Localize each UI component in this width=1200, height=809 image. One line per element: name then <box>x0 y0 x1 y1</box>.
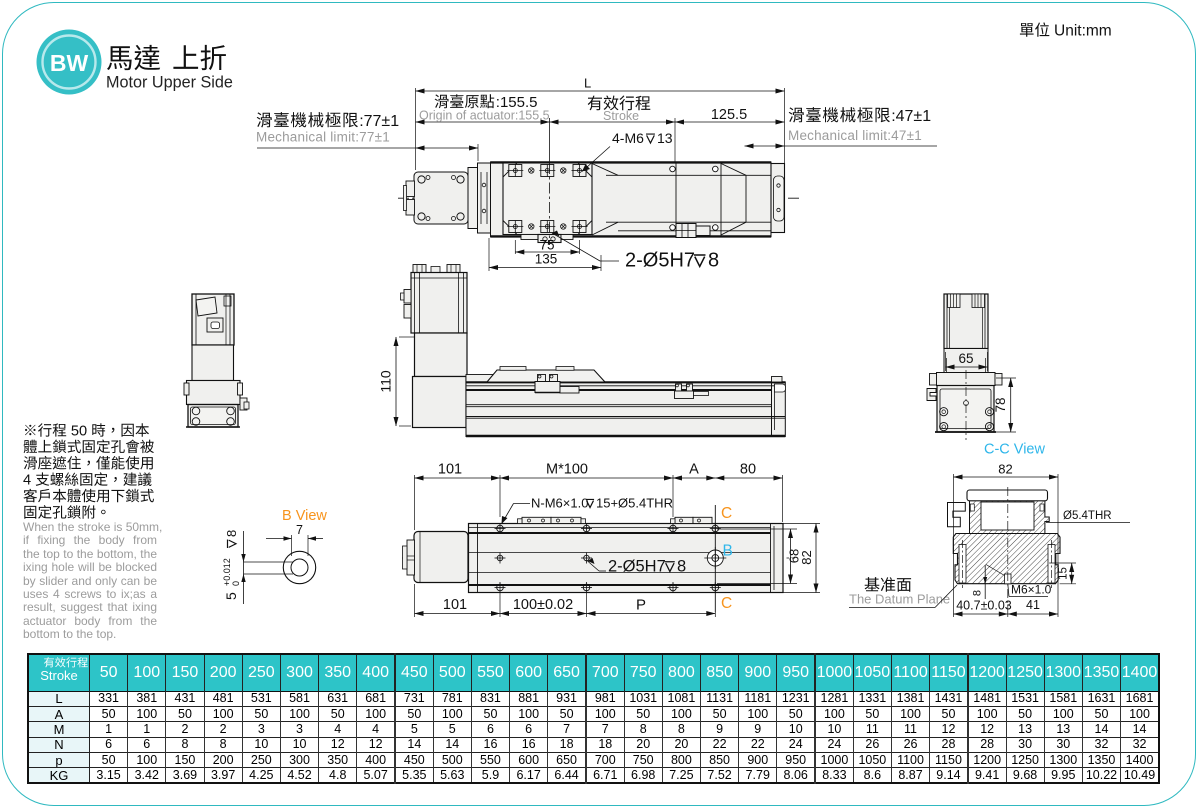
svg-text:Origin of actuator:155.5: Origin of actuator:155.5 <box>419 109 550 123</box>
svg-text:M6×1.0: M6×1.0 <box>1011 583 1052 597</box>
svg-text:Motor Upper Side: Motor Upper Side <box>106 74 233 92</box>
svg-text:B View: B View <box>282 508 327 524</box>
svg-text:C-C View: C-C View <box>984 442 1045 458</box>
svg-text:40.7±0.03: 40.7±0.03 <box>956 599 1012 613</box>
svg-text:65: 65 <box>958 351 973 366</box>
svg-text:135: 135 <box>535 252 558 267</box>
svg-text:82: 82 <box>998 462 1012 477</box>
svg-text:0: 0 <box>231 581 241 586</box>
svg-text::77±1: :77±1 <box>359 113 399 130</box>
svg-text::47±1: :47±1 <box>891 108 931 125</box>
svg-text:82: 82 <box>799 550 814 564</box>
svg-text:Ø5.4THR: Ø5.4THR <box>1063 510 1112 522</box>
svg-text:M*100: M*100 <box>546 462 588 478</box>
svg-text:Unit:mm: Unit:mm <box>1054 23 1112 40</box>
svg-text:C: C <box>721 505 732 522</box>
svg-text:A: A <box>689 462 699 478</box>
svg-text:C: C <box>721 595 732 612</box>
svg-text:Mechanical limit:47±1: Mechanical limit:47±1 <box>788 128 922 143</box>
svg-text:101: 101 <box>443 597 467 613</box>
svg-text:13: 13 <box>657 130 673 146</box>
svg-text:P: P <box>636 597 646 614</box>
svg-text:2-Ø5H7: 2-Ø5H7 <box>625 250 695 272</box>
svg-text:4: 4 <box>23 473 35 489</box>
svg-text:BW: BW <box>50 50 89 76</box>
svg-text:2-Ø5H7: 2-Ø5H7 <box>608 558 666 576</box>
svg-text:50: 50 <box>67 424 91 440</box>
svg-text:41: 41 <box>1026 598 1040 612</box>
svg-text:7: 7 <box>296 523 303 537</box>
svg-text:L: L <box>584 76 591 91</box>
svg-text:8: 8 <box>677 558 686 576</box>
svg-text:N-M6×1.0: N-M6×1.0 <box>531 496 588 511</box>
svg-text:4-M6: 4-M6 <box>612 130 644 146</box>
svg-text:Mechanical limit:77±1: Mechanical limit:77±1 <box>256 130 390 145</box>
svg-text:125.5: 125.5 <box>711 107 747 123</box>
svg-text:78: 78 <box>993 397 1008 412</box>
svg-text:100±0.02: 100±0.02 <box>513 597 573 613</box>
svg-text:101: 101 <box>438 462 462 478</box>
svg-text:Stroke: Stroke <box>603 109 639 123</box>
svg-text:5: 5 <box>223 592 239 600</box>
svg-text:The Datum Plane: The Datum Plane <box>849 592 950 607</box>
svg-text:110: 110 <box>378 370 394 393</box>
svg-text:75: 75 <box>539 238 554 253</box>
svg-text:80: 80 <box>740 462 756 478</box>
svg-text:15+Ø5.4THR: 15+Ø5.4THR <box>596 496 673 511</box>
svg-text:8: 8 <box>224 530 239 537</box>
svg-text:15: 15 <box>1058 567 1070 580</box>
svg-text:8: 8 <box>708 250 719 272</box>
svg-text:B: B <box>723 543 733 560</box>
svg-text:8: 8 <box>972 590 984 596</box>
